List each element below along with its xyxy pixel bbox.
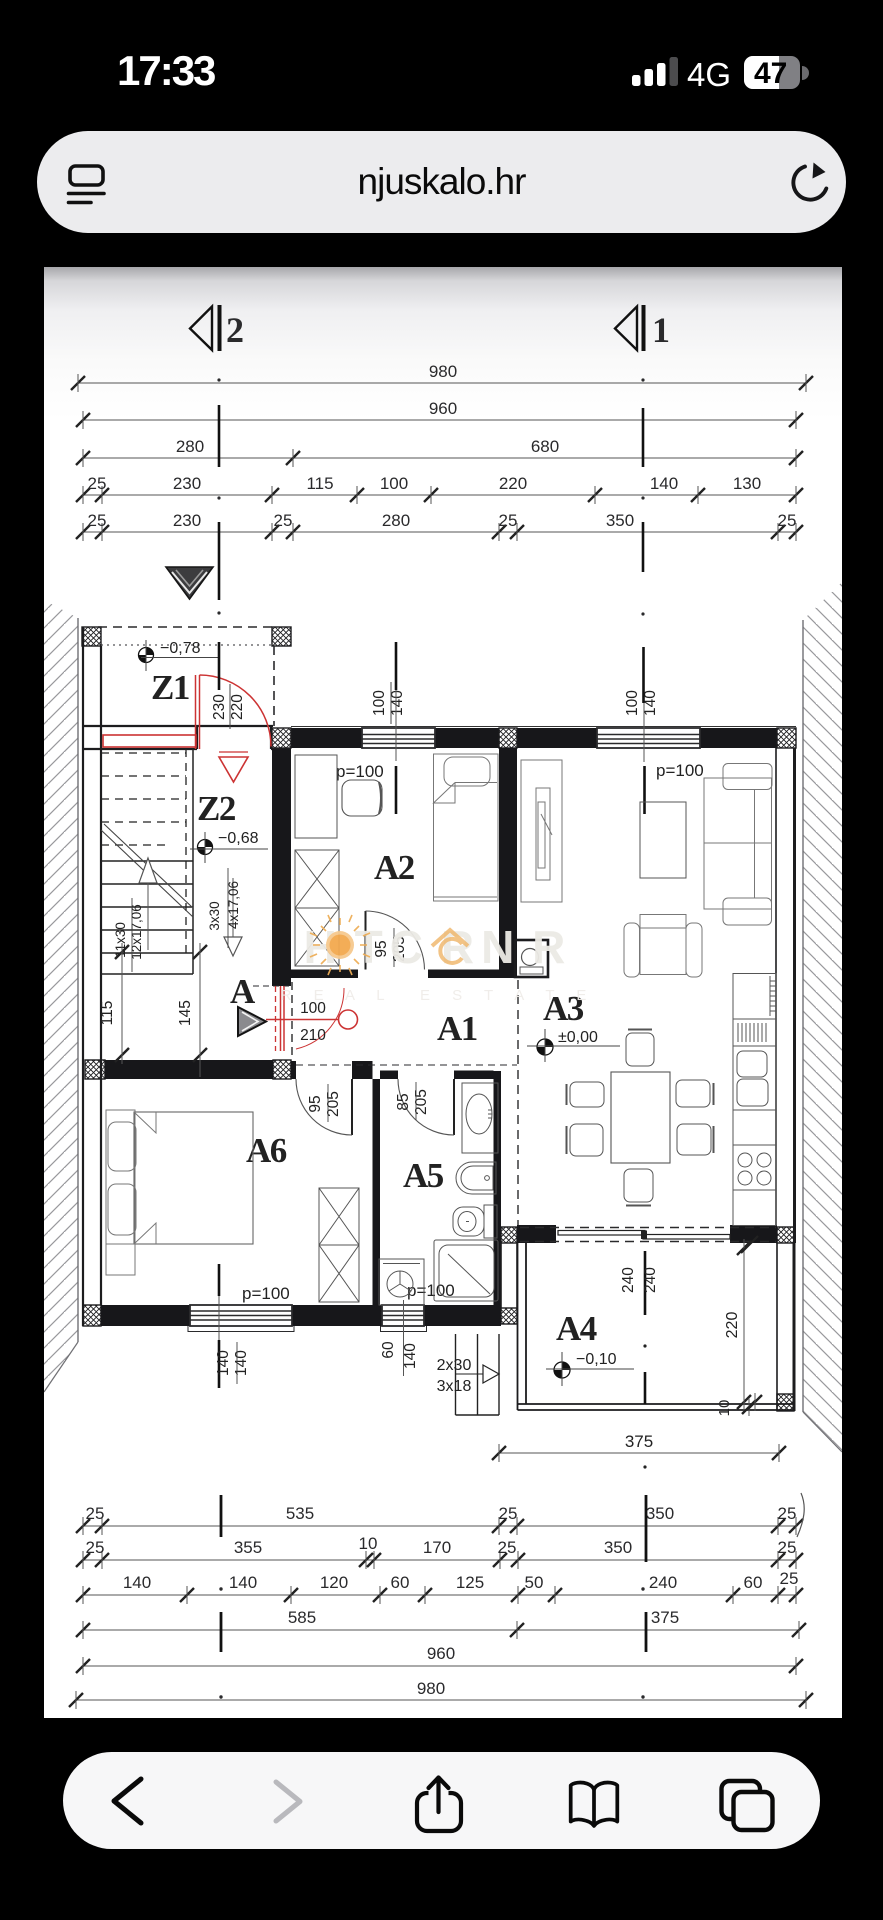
svg-text:240: 240 <box>649 1573 677 1592</box>
svg-text:140: 140 <box>229 1573 257 1592</box>
svg-text:125: 125 <box>456 1573 484 1592</box>
svg-text:85: 85 <box>395 1093 412 1110</box>
svg-text:350: 350 <box>646 1504 674 1523</box>
svg-text:140: 140 <box>233 1350 250 1376</box>
svg-text:350: 350 <box>606 511 634 530</box>
svg-text:25: 25 <box>778 1504 797 1523</box>
svg-text:4G: 4G <box>687 56 731 93</box>
svg-text:25: 25 <box>778 1538 797 1557</box>
svg-text:A6: A6 <box>246 1131 287 1170</box>
svg-text:R E A L E S T A T E: R E A L E S T A T E <box>281 987 596 1004</box>
svg-text:25: 25 <box>778 511 797 530</box>
svg-text:47: 47 <box>754 57 787 90</box>
svg-text:140: 140 <box>215 1350 232 1376</box>
svg-text:A2: A2 <box>374 848 414 887</box>
svg-text:140: 140 <box>123 1573 151 1592</box>
svg-text:25: 25 <box>274 511 293 530</box>
svg-text:p=100: p=100 <box>242 1284 290 1303</box>
svg-text:230: 230 <box>211 694 228 720</box>
svg-text:p=100: p=100 <box>656 761 704 780</box>
svg-text:−0,68: −0,68 <box>218 830 259 847</box>
svg-text:Z1: Z1 <box>151 668 189 707</box>
svg-text:60: 60 <box>391 1573 410 1592</box>
svg-text:2x30: 2x30 <box>437 1357 472 1374</box>
svg-text:240: 240 <box>620 1267 637 1293</box>
svg-text:280: 280 <box>382 511 410 530</box>
svg-text:A1: A1 <box>437 1009 477 1048</box>
svg-text:140: 140 <box>402 1343 419 1369</box>
svg-text:960: 960 <box>429 399 457 418</box>
svg-text:350: 350 <box>604 1538 632 1557</box>
svg-text:25: 25 <box>499 511 518 530</box>
svg-text:10: 10 <box>716 1400 733 1417</box>
svg-text:980: 980 <box>417 1679 445 1698</box>
svg-text:960: 960 <box>427 1644 455 1663</box>
svg-text:1: 1 <box>652 310 670 350</box>
svg-text:3x18: 3x18 <box>437 1378 472 1395</box>
svg-text:230: 230 <box>173 474 201 493</box>
svg-text:25: 25 <box>499 1504 518 1523</box>
svg-text:230: 230 <box>173 511 201 530</box>
svg-text:140: 140 <box>389 690 406 716</box>
svg-text:50: 50 <box>525 1573 544 1592</box>
svg-text:2: 2 <box>226 310 244 350</box>
svg-text:170: 170 <box>423 1538 451 1557</box>
svg-text:Z2: Z2 <box>197 789 235 828</box>
svg-text:220: 220 <box>499 474 527 493</box>
svg-text:−0,10: −0,10 <box>576 1351 617 1368</box>
svg-text:980: 980 <box>429 362 457 381</box>
svg-text:10: 10 <box>359 1534 378 1553</box>
svg-text:115: 115 <box>99 1001 116 1026</box>
svg-text:220: 220 <box>229 694 246 720</box>
svg-text:25: 25 <box>86 1504 105 1523</box>
svg-text:−0,78: −0,78 <box>160 640 201 657</box>
svg-text:535: 535 <box>286 1504 314 1523</box>
svg-text:210: 210 <box>300 1027 326 1044</box>
svg-text:95: 95 <box>307 1095 324 1112</box>
svg-text:±0,00: ±0,00 <box>558 1029 598 1046</box>
svg-text:100: 100 <box>624 690 641 716</box>
svg-text:115: 115 <box>306 474 333 493</box>
svg-text:100: 100 <box>380 474 408 493</box>
svg-text:100: 100 <box>371 690 388 716</box>
svg-text:A: A <box>230 972 256 1011</box>
svg-text:25: 25 <box>780 1569 799 1588</box>
svg-text:140: 140 <box>650 474 678 493</box>
svg-text:585: 585 <box>288 1608 316 1627</box>
svg-text:130: 130 <box>733 474 761 493</box>
svg-text:3x30: 3x30 <box>207 901 222 930</box>
svg-text:375: 375 <box>625 1432 653 1451</box>
svg-text:A5: A5 <box>403 1156 444 1195</box>
svg-text:280: 280 <box>176 437 204 456</box>
svg-text:p=100: p=100 <box>336 762 384 781</box>
svg-text:A4: A4 <box>556 1309 597 1348</box>
svg-text:145: 145 <box>177 1000 194 1026</box>
svg-text:240: 240 <box>642 1267 659 1293</box>
svg-text:60: 60 <box>744 1573 763 1592</box>
svg-text:375: 375 <box>651 1608 679 1627</box>
svg-text:25: 25 <box>88 511 107 530</box>
svg-text:680: 680 <box>531 437 559 456</box>
svg-text:25: 25 <box>86 1538 105 1557</box>
svg-text:120: 120 <box>320 1573 348 1592</box>
svg-text:60: 60 <box>380 1341 397 1359</box>
svg-text:220: 220 <box>724 1312 741 1339</box>
svg-text:355: 355 <box>234 1538 262 1557</box>
svg-text:25: 25 <box>88 474 107 493</box>
svg-text:12x17,06: 12x17,06 <box>129 904 144 960</box>
svg-text:25: 25 <box>498 1538 517 1557</box>
